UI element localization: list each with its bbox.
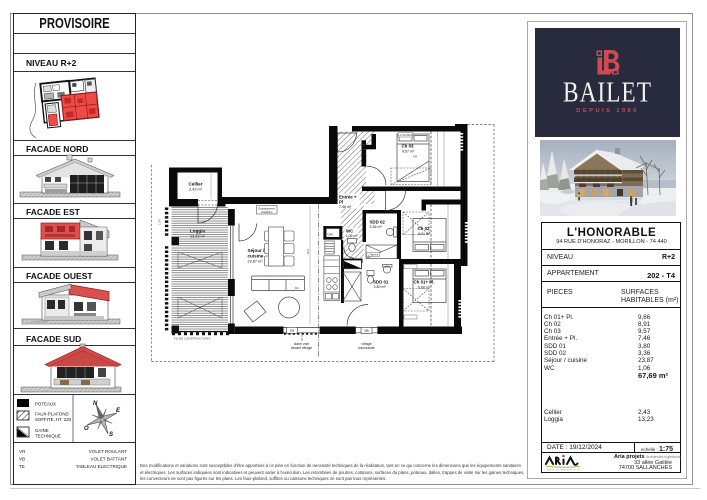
svg-text:VR: VR	[19, 449, 26, 454]
svg-text:SDD 01: SDD 01	[373, 280, 389, 285]
svg-text:23,87 m²: 23,87 m²	[248, 260, 264, 264]
svg-text:chaudière: chaudière	[261, 210, 273, 214]
svg-text:VS: VS	[290, 329, 294, 333]
svg-text:L.Hauteur: L.Hauteur	[368, 254, 379, 257]
svg-text:TE: TE	[19, 464, 25, 469]
svg-text:N: N	[93, 401, 98, 407]
svg-text:VB: VB	[19, 457, 25, 462]
svg-text:WC: WC	[346, 229, 354, 234]
svg-text:RA: RA	[295, 286, 299, 290]
svg-text:Ch 03: Ch 03	[402, 144, 415, 149]
svg-text:devant vitrage: devant vitrage	[291, 346, 312, 350]
svg-text:Cellier: Cellier	[188, 182, 202, 187]
svg-text:3,80 m²: 3,80 m²	[374, 285, 387, 289]
svg-text:Loggia: Loggia	[190, 229, 206, 234]
svg-text:8,91 m²: 8,91 m²	[418, 232, 431, 236]
svg-text:translucide: translucide	[358, 346, 375, 350]
svg-text:S: S	[109, 432, 113, 438]
svg-text:POTEAUX: POTEAUX	[35, 402, 56, 407]
svg-text:VB: VB	[364, 329, 368, 333]
svg-text:GAINE: GAINE	[35, 428, 49, 433]
svg-text:O: O	[84, 426, 89, 432]
svg-text:VOLET ROULANT: VOLET ROULANT	[89, 449, 127, 454]
svg-text:CH.: CH.	[328, 233, 334, 237]
svg-text:TABLEAU ELECTRIQUE: TABLEAU ELECTRIQUE	[76, 464, 127, 469]
svg-text:9,66 m²: 9,66 m²	[418, 286, 431, 290]
svg-text:BAILET: BAILET	[563, 76, 652, 108]
svg-text:2,43 m²: 2,43 m²	[189, 188, 203, 192]
svg-text:FAUX-PLAFOND: FAUX-PLAFOND	[35, 412, 69, 417]
svg-text:Ch 02: Ch 02	[418, 226, 431, 231]
svg-text:3,36 m²: 3,36 m²	[370, 225, 383, 229]
svg-text:Emplacement: Emplacement	[258, 206, 275, 210]
svg-text:Pl: Pl	[339, 200, 343, 205]
svg-text:Ch 01+ Pl.: Ch 01+ Pl.	[414, 280, 435, 285]
svg-text:SDD 02: SDD 02	[370, 220, 386, 225]
svg-text:FIL DE CONSTRUCTIONS: FIL DE CONSTRUCTIONS	[174, 337, 210, 341]
svg-text:PM: PM	[413, 155, 417, 159]
svg-text:L.L HAUTEUR: L.L HAUTEUR	[398, 134, 414, 137]
svg-text:BI: BI	[301, 338, 304, 342]
svg-text:1100: 1100	[158, 219, 162, 225]
svg-text:VOLET BATTANT: VOLET BATTANT	[91, 457, 128, 462]
svg-text:7,46 m²: 7,46 m²	[339, 205, 352, 209]
svg-text:DEPUIS 1980: DEPUIS 1980	[576, 108, 639, 114]
svg-text:TECHNIQUE: TECHNIQUE	[35, 434, 61, 439]
svg-text:9,57 m²: 9,57 m²	[402, 150, 415, 154]
svg-text:1,06 m²: 1,06 m²	[346, 234, 359, 238]
svg-text:503: 503	[306, 249, 310, 254]
svg-text:SOFFITE, HT. 220: SOFFITE, HT. 220	[35, 417, 72, 422]
svg-text:E: E	[116, 408, 121, 414]
svg-text:Séjour /: Séjour /	[248, 248, 266, 253]
svg-text:13,23 m²: 13,23 m²	[190, 235, 206, 239]
svg-text:cuisine: cuisine	[248, 254, 264, 259]
